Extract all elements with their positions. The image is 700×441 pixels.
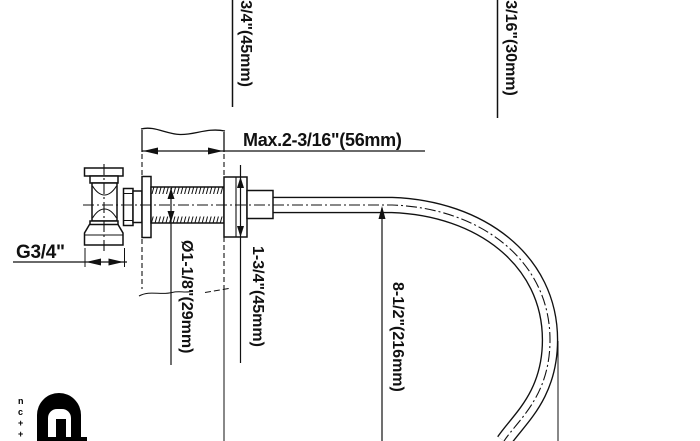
dim-label-spout-drop: 8-1/2"(216mm) [387, 282, 407, 392]
spout-tube [273, 205, 550, 441]
dim-label-top-left: 1-3/4"(45mm) [235, 0, 255, 87]
logo-underline-bar [37, 437, 87, 441]
dim-label-escutcheon: 1-3/4"(45mm) [247, 246, 267, 347]
escutcheon-flange [224, 177, 273, 237]
dim-label-top-right: 1-3/16"(30mm) [500, 0, 520, 96]
logo-letter: n [18, 396, 24, 407]
spec-sheet-drawing: 1-3/4"(45mm) 1-3/16"(30mm) Max.2-3/16"(5… [0, 0, 700, 441]
arrow-left [86, 259, 101, 266]
thread-hatch-bottom [152, 217, 224, 224]
logo-letter: + [18, 418, 24, 429]
dim-label-thread: G3/4" [16, 243, 65, 262]
technical-drawing-canvas [0, 0, 700, 441]
thread-hatch-top [152, 188, 224, 195]
rough-in-body [124, 177, 225, 238]
arrow-right [208, 148, 223, 155]
dim-spout-drop [379, 206, 386, 441]
brand-logo: n c + + [0, 390, 100, 441]
brand-logo-glyph [37, 393, 81, 437]
dim-label-body-diameter: Ø1-1/8"(29mm) [176, 240, 196, 353]
brand-logo-vertical-text: n c + + [18, 396, 24, 440]
dim-label-wall-max: Max.2-3/16"(56mm) [243, 131, 402, 149]
arrow-left [143, 148, 158, 155]
logo-letter: + [18, 429, 24, 440]
logo-pillar [56, 419, 66, 437]
arrow-right [109, 259, 124, 266]
logo-letter: c [18, 407, 24, 418]
